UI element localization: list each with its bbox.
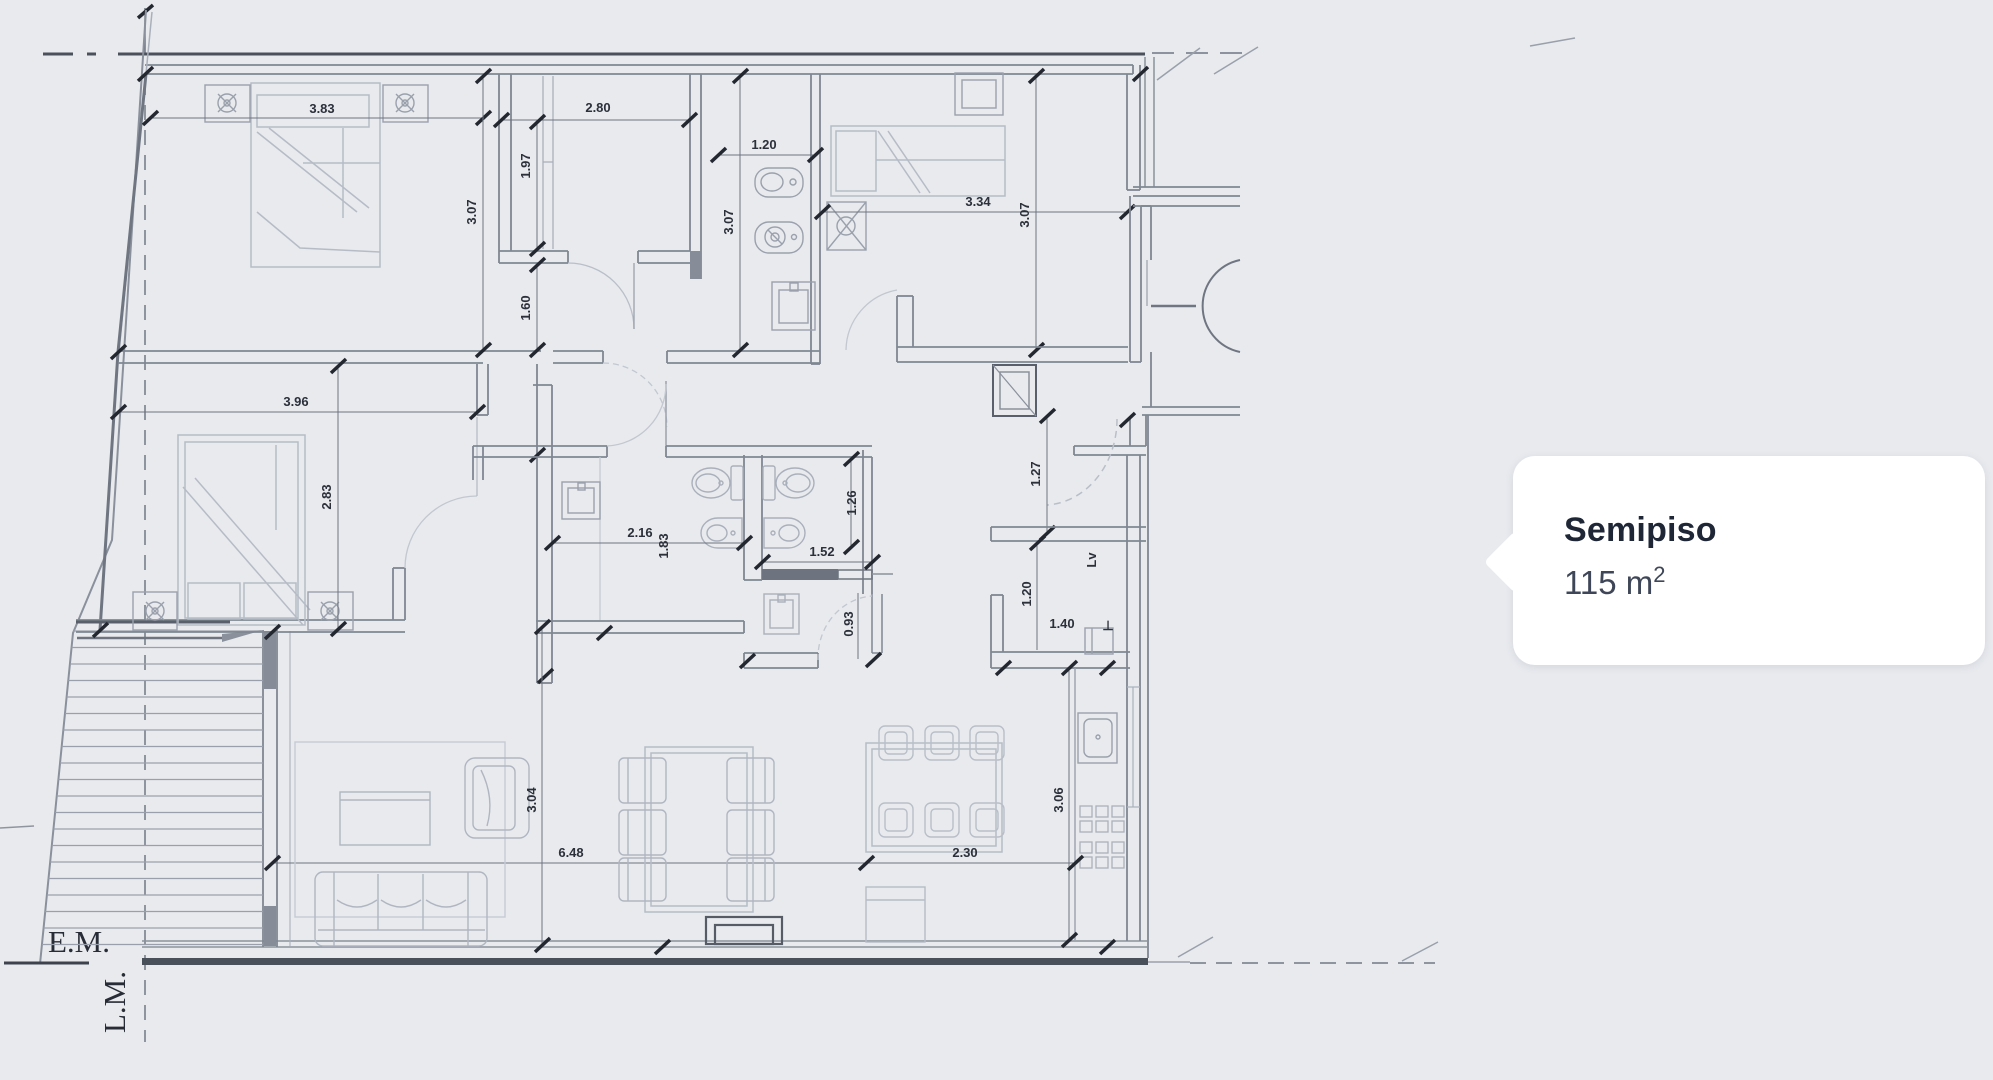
- svg-text:6.48: 6.48: [558, 845, 583, 860]
- svg-text:L.M.: L.M.: [97, 971, 132, 1033]
- svg-text:3.06: 3.06: [1051, 787, 1066, 812]
- svg-text:2.30: 2.30: [952, 845, 977, 860]
- svg-text:Lv: Lv: [1084, 552, 1099, 568]
- svg-text:2.80: 2.80: [585, 100, 610, 115]
- svg-text:1.60: 1.60: [518, 295, 533, 320]
- svg-text:3.96: 3.96: [283, 394, 308, 409]
- svg-text:E.M.: E.M.: [48, 924, 110, 959]
- svg-text:0.93: 0.93: [841, 611, 856, 636]
- svg-text:1.27: 1.27: [1028, 461, 1043, 486]
- svg-text:1.97: 1.97: [518, 153, 533, 178]
- svg-text:3.83: 3.83: [309, 101, 334, 116]
- svg-text:2.83: 2.83: [319, 484, 334, 509]
- svg-text:3.04: 3.04: [524, 787, 539, 813]
- svg-text:1.52: 1.52: [809, 544, 834, 559]
- svg-text:1.20: 1.20: [751, 137, 776, 152]
- svg-text:3.07: 3.07: [464, 199, 479, 224]
- svg-text:3.07: 3.07: [1017, 202, 1032, 227]
- svg-text:3.34: 3.34: [965, 194, 991, 209]
- svg-text:1.26: 1.26: [844, 490, 859, 515]
- svg-text:1.40: 1.40: [1049, 616, 1074, 631]
- svg-text:1.83: 1.83: [656, 533, 671, 558]
- svg-text:⊥: ⊥: [1102, 618, 1113, 633]
- svg-text:3.07: 3.07: [721, 209, 736, 234]
- svg-text:2.16: 2.16: [627, 525, 652, 540]
- svg-text:1.20: 1.20: [1019, 581, 1034, 606]
